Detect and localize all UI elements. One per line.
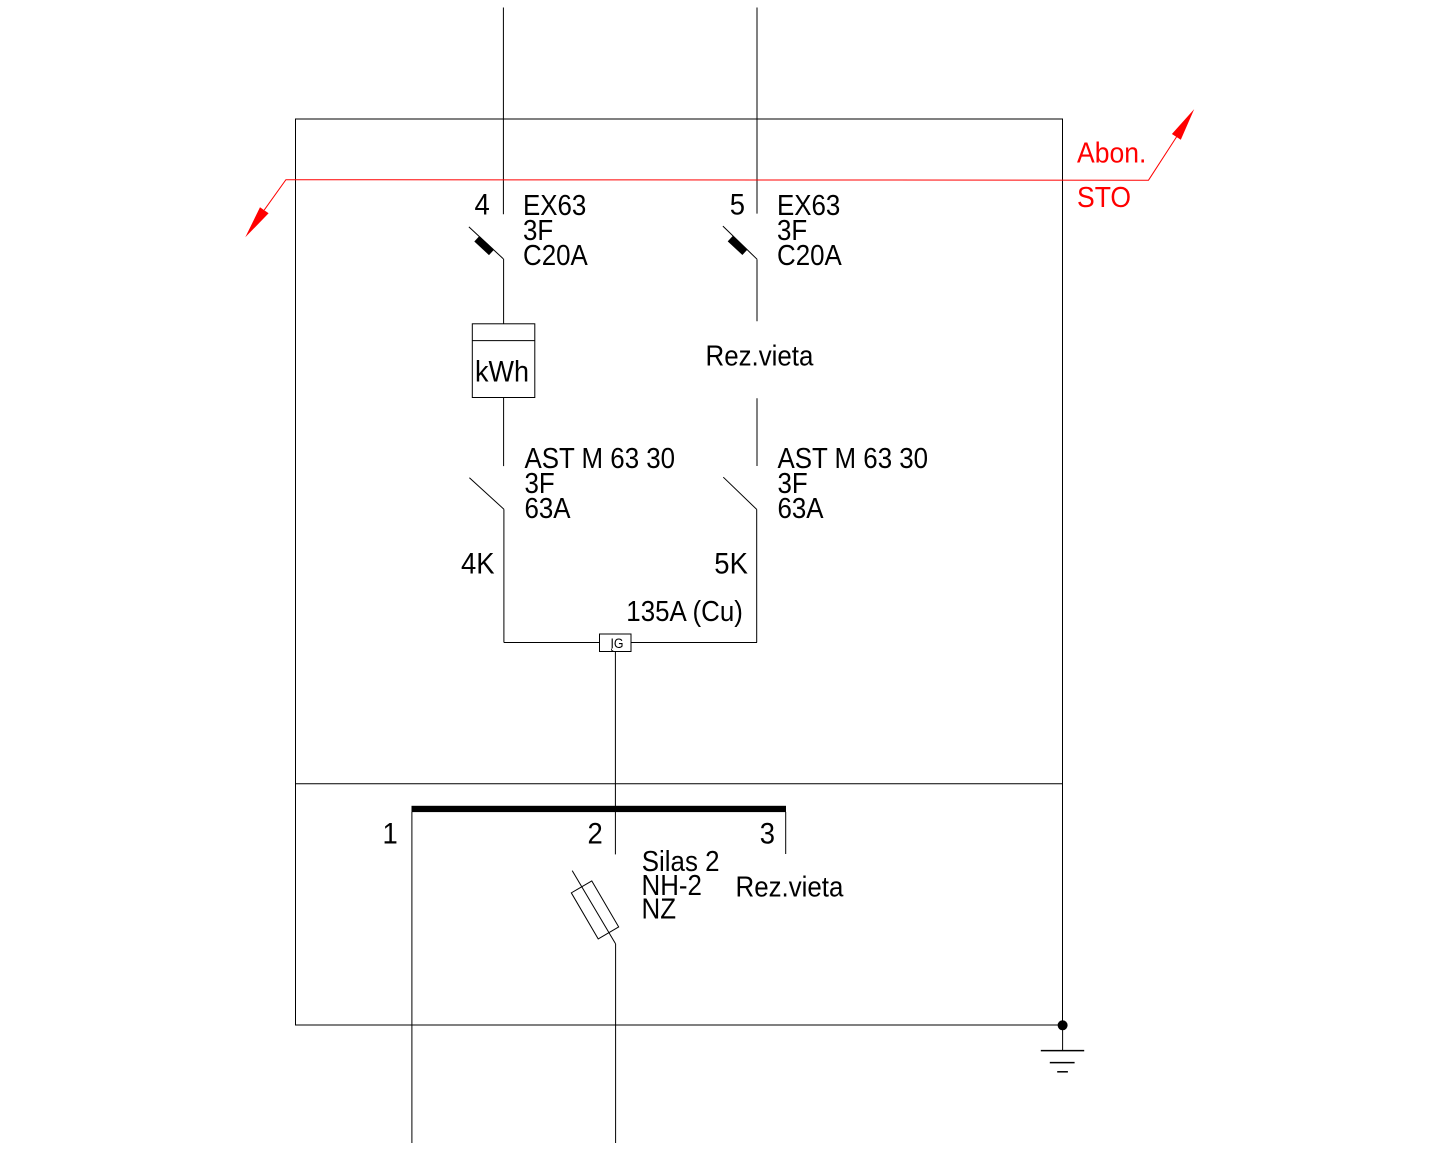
svg-text:63A: 63A (525, 492, 572, 524)
svg-text:C20A: C20A (523, 239, 589, 271)
svg-text:Rez.vieta: Rez.vieta (736, 870, 845, 902)
svg-text:ĮG: ĮG (611, 635, 624, 651)
svg-text:135A (Cu): 135A (Cu) (626, 595, 743, 627)
svg-text:3: 3 (760, 817, 775, 850)
svg-text:5: 5 (730, 188, 745, 221)
svg-text:63A: 63A (778, 492, 825, 524)
svg-text:2: 2 (588, 817, 603, 850)
svg-text:kWh: kWh (475, 354, 529, 387)
svg-text:1: 1 (383, 817, 398, 850)
svg-text:NZ: NZ (642, 893, 677, 925)
svg-text:STO: STO (1077, 181, 1131, 213)
svg-text:Abon.: Abon. (1077, 136, 1146, 168)
svg-text:4K: 4K (461, 547, 495, 580)
svg-text:5K: 5K (714, 547, 748, 580)
svg-text:4: 4 (475, 188, 490, 221)
svg-text:C20A: C20A (777, 239, 843, 271)
svg-text:Rez.vieta: Rez.vieta (706, 339, 815, 371)
